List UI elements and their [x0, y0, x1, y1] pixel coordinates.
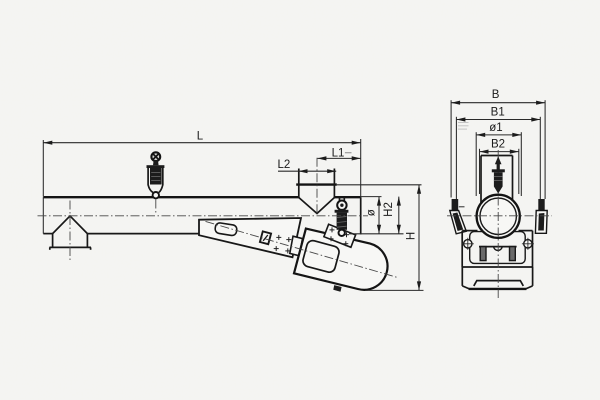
svg-text:L1: L1 [332, 147, 345, 159]
svg-text:B: B [492, 89, 500, 101]
svg-text:B2: B2 [491, 139, 505, 151]
svg-text:H2: H2 [383, 202, 395, 217]
svg-text:B1: B1 [491, 106, 505, 118]
svg-text:L: L [197, 130, 204, 142]
svg-text:ø1: ø1 [489, 122, 502, 134]
svg-text:H: H [405, 232, 417, 240]
svg-text:ø: ø [365, 209, 377, 216]
svg-text:L2: L2 [278, 159, 291, 171]
